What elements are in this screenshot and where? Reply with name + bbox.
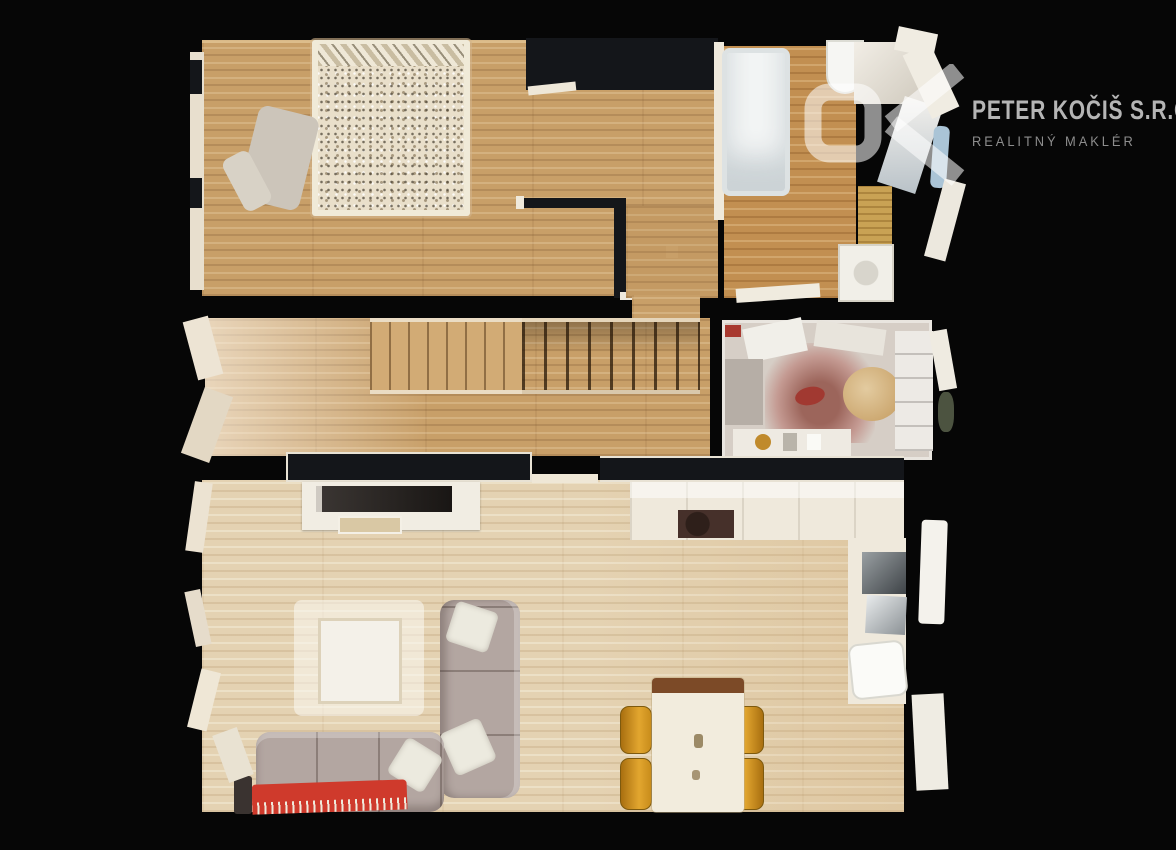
- bed: [312, 40, 470, 216]
- plant-dark: [938, 392, 954, 432]
- small-item: [755, 434, 771, 450]
- brand-name: PETER KOČIŠ S.R.O.: [972, 95, 1176, 126]
- washing-machine: [838, 244, 894, 302]
- dining-chair: [620, 706, 652, 754]
- dk-monogram-icon: [795, 64, 970, 190]
- coffee-table: [318, 618, 402, 704]
- door-threshold: [532, 474, 598, 483]
- scan-artifact: [924, 179, 966, 262]
- blanket-red: [252, 779, 408, 814]
- table-detail: [692, 770, 700, 780]
- bathtub: [722, 48, 790, 196]
- door-panel: [918, 520, 948, 625]
- storage-room: [722, 320, 932, 460]
- livingroom-wall: [286, 452, 532, 482]
- hallway-wall: [520, 198, 626, 208]
- small-item: [783, 433, 797, 451]
- wall-notch: [190, 178, 202, 208]
- dining-table: [652, 678, 744, 812]
- stair-landing-floor: [626, 206, 718, 298]
- hallway-wall: [614, 206, 626, 298]
- console-shelf: [338, 516, 402, 534]
- appliance-white: [847, 639, 909, 701]
- page-background: { "brand": { "monogram": "DK", "name": "…: [0, 0, 1176, 850]
- tv-flatscreen: [316, 486, 452, 512]
- table-detail: [694, 734, 703, 748]
- wall-trim: [516, 196, 524, 209]
- cooktop: [678, 510, 734, 538]
- table-end-wood: [652, 678, 744, 693]
- sink-chrome: [865, 595, 907, 635]
- brand-block: PETER KOČIŠ S.R.O. REALITNÝ MAKLÉR: [972, 95, 1176, 149]
- basket-tan: [843, 367, 901, 421]
- blanket-fringe: [252, 797, 407, 814]
- cabinet-wood: [858, 186, 892, 250]
- wall-notch: [190, 60, 202, 94]
- staircase-banister: [370, 318, 522, 394]
- brand-tagline: REALITNÝ MAKLÉR: [972, 133, 1176, 149]
- dk-logo-mark: [795, 64, 970, 190]
- red-object: [725, 325, 741, 337]
- kitchen-counter: [630, 482, 904, 540]
- scan-artifact: [929, 329, 957, 391]
- livingroom-wall: [600, 456, 904, 482]
- appliance-dark: [862, 552, 906, 594]
- bed-duvet: [318, 66, 464, 210]
- small-item: [807, 434, 821, 450]
- staircase-treads: [522, 318, 700, 394]
- wall-opening-top: [526, 38, 718, 90]
- bed-pillows: [318, 44, 464, 68]
- wardrobe: [895, 331, 933, 451]
- door-panel: [912, 693, 949, 791]
- gray-cabinet: [725, 359, 763, 425]
- shelf-bottom: [733, 429, 851, 457]
- dining-chair: [620, 758, 652, 810]
- side-table-dark: [234, 776, 252, 814]
